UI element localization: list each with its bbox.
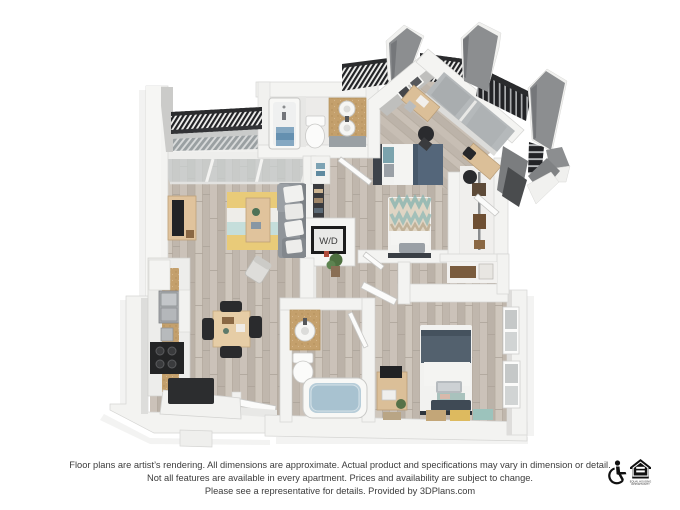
svg-text:OPPORTUNITY: OPPORTUNITY bbox=[631, 482, 650, 486]
svg-text:Not all features are available: Not all features are available in every … bbox=[147, 473, 533, 483]
svg-text:Please see a representative fo: Please see a representative for details.… bbox=[205, 486, 476, 496]
svg-text:W/D: W/D bbox=[319, 236, 338, 247]
svg-text:Floor plans are artist’s rende: Floor plans are artist’s rendering. All … bbox=[69, 460, 610, 470]
